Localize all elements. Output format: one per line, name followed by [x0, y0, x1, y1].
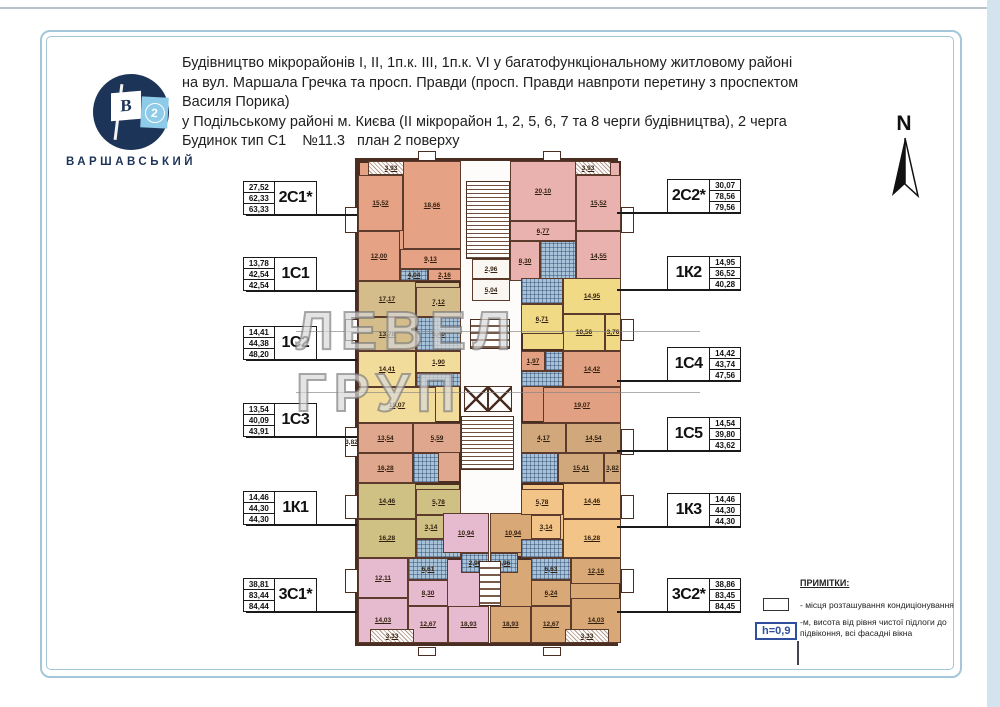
title-line: Будівництво мікрорайонів I, II, 1п.к. II…: [182, 54, 842, 74]
room: 8,30: [408, 580, 448, 606]
room: 9,13: [400, 249, 461, 269]
room-area-label: 2,96: [485, 266, 498, 273]
tile: [521, 371, 563, 387]
tile: [521, 278, 563, 304]
area-value: 47,56: [710, 370, 740, 380]
room-area-label: 12,00: [371, 253, 387, 260]
room: 4,17: [521, 423, 566, 453]
north-label: N: [884, 112, 924, 136]
area-value: 44,30: [710, 516, 740, 526]
tile: [545, 351, 563, 371]
bay: [345, 207, 358, 233]
area-value: 14,95: [710, 257, 740, 268]
room: 8,30: [510, 241, 540, 281]
room-area-label: 6,61: [422, 566, 435, 573]
area-value: 13,54: [244, 404, 274, 415]
room-area-label: 12,11: [375, 575, 391, 582]
logo-number: 2: [144, 102, 165, 123]
room-area-label: 3,82: [345, 439, 358, 446]
room-area-label: 4,17: [537, 435, 550, 442]
area-value: 79,56: [710, 202, 740, 212]
notes-title: ПРИМІТКИ:: [800, 578, 849, 588]
apartment-code: 3С1*: [275, 579, 316, 611]
room: 17,17: [358, 281, 416, 317]
area-value: 83,44: [244, 590, 274, 601]
tab: [543, 647, 561, 656]
apartment-label-1С5: 14,5439,8043,621С5: [667, 417, 741, 451]
title-line: у Подільському районі м. Києва (II мікро…: [182, 113, 842, 133]
room: 14,55: [576, 231, 621, 281]
hatch: 3,33: [370, 629, 414, 643]
room: 1,90: [416, 351, 461, 373]
bay: [621, 569, 634, 593]
room-area-label: 4,04: [408, 272, 421, 279]
room-area-label: 6,24: [545, 590, 558, 597]
area-value: 43,74: [710, 359, 740, 370]
area-value: 78,56: [710, 191, 740, 202]
apartment-code: 1С4: [668, 348, 709, 380]
room-area-label: 12,67: [543, 621, 559, 628]
lift: [488, 386, 512, 412]
room: 16,28: [358, 453, 413, 483]
hatch: 3,33: [565, 629, 609, 643]
room: 7,12: [416, 287, 461, 317]
apartment-label-1К2: 14,9536,5240,281К2: [667, 256, 741, 290]
apartment-areas: 14,5439,8043,62: [709, 418, 740, 450]
room: 12,67: [408, 606, 448, 643]
room-area-label: 19,07: [574, 402, 590, 409]
room-area-label: 14,46: [584, 498, 600, 505]
room-area-label: 14,03: [375, 617, 391, 624]
title-line: на вул. Маршала Гречка та просп. Правди …: [182, 74, 842, 113]
ac-unit-symbol: [763, 598, 789, 611]
area-value: 44,30: [710, 505, 740, 516]
room-area-label: 16,28: [379, 535, 395, 542]
room-area-label: 8,30: [519, 258, 532, 265]
room-area-label: 6,63: [545, 566, 558, 573]
apartment-label-1С2: 14,4144,3848,201С2: [243, 326, 317, 360]
apartment-label-2С2: 30,0778,5679,562С2*: [667, 179, 741, 213]
developer-logo: B 2 ВАРШАВСЬКИЙ: [55, 70, 187, 170]
room: 14,41: [358, 351, 416, 387]
room: 5,59: [413, 423, 461, 453]
area-value: 27,52: [244, 182, 274, 193]
area-value: 84,45: [710, 601, 740, 611]
area-value: 13,78: [244, 258, 274, 269]
room: 14,46: [358, 483, 416, 519]
room-area-label: 14,03: [588, 617, 604, 624]
room: 15,52: [358, 175, 403, 231]
apartment-label-1С1: 13,7842,5442,541С1: [243, 257, 317, 291]
room-area-label: 5,59: [431, 435, 444, 442]
room-area-label: 17,17: [379, 296, 395, 303]
room-area-label: 1,97: [527, 358, 540, 365]
apartment-areas: 13,5440,0943,91: [244, 404, 275, 436]
room: 5,78: [521, 489, 563, 515]
scan-top-line: [0, 7, 1000, 9]
area-value: 30,07: [710, 180, 740, 191]
north-indicator: N: [884, 112, 924, 209]
room-area-label: 3,93: [385, 165, 398, 172]
apartment-code: 1К3: [668, 494, 709, 526]
room: 3,14: [416, 515, 446, 539]
room: 18,66: [403, 161, 461, 249]
area-value: 44,38: [244, 338, 274, 349]
room: 13,54: [358, 423, 413, 453]
room: 19,07: [358, 387, 436, 423]
apartment-areas: 14,9536,5240,28: [709, 257, 740, 289]
shaft: [479, 561, 501, 606]
bay: [621, 207, 634, 233]
apartment-areas: 14,4644,3044,30: [709, 494, 740, 526]
area-value: 42,54: [244, 280, 274, 290]
area-value: 39,80: [710, 429, 740, 440]
document-title: Будівництво мікрорайонів I, II, 1п.к. II…: [182, 54, 842, 152]
area-value: 40,28: [710, 279, 740, 289]
logo-flag-icon: B: [111, 91, 141, 122]
room-area-label: 13,54: [377, 435, 393, 442]
room-area-label: 15,52: [590, 200, 606, 207]
room-area-label: 14,46: [379, 498, 395, 505]
area-value: 43,62: [710, 440, 740, 450]
bay: [345, 495, 358, 519]
area-value: 36,52: [710, 268, 740, 279]
area-value: 44,30: [244, 503, 274, 514]
room-area-label: 6,77: [537, 228, 550, 235]
area-value: 83,45: [710, 590, 740, 601]
apartment-label-2С1: 27,5262,3363,332С1*: [243, 181, 317, 215]
tile: [521, 539, 563, 558]
tile: [413, 453, 439, 483]
title-line: Будинок тип С1 №11.3 план 2 поверху: [182, 132, 842, 152]
room-area-label: 5,04: [485, 287, 498, 294]
area-value: 14,41: [244, 327, 274, 338]
room-area-label: 1,90: [432, 359, 445, 366]
room: 18,93: [448, 606, 489, 643]
apartment-areas: 13,7842,5442,54: [244, 258, 275, 290]
apartment-code: 2С1*: [275, 182, 316, 214]
apartment-code: 1С2: [275, 327, 316, 359]
area-value: 40,09: [244, 415, 274, 426]
room: 15,52: [576, 175, 621, 231]
bay: [621, 495, 634, 519]
area-value: 62,33: [244, 193, 274, 204]
lift: [464, 386, 488, 412]
tile: [540, 241, 576, 281]
room-area-label: 5,78: [536, 499, 549, 506]
apartment-code: 1К1: [275, 492, 316, 524]
room-area-label: 5,78: [432, 499, 445, 506]
room-area-label: 19,07: [389, 402, 405, 409]
room-area-label: 12,67: [420, 621, 436, 628]
area-value: 48,20: [244, 349, 274, 359]
room-area-label: 18,93: [460, 621, 476, 628]
bay: 3,82: [345, 427, 358, 457]
room: 3,82: [604, 453, 621, 483]
apartment-code: 1С5: [668, 418, 709, 450]
floor-plan-page: B 2 ВАРШАВСЬКИЙ Будівництво мікрорайонів…: [0, 0, 1000, 707]
room-area-label: 10,94: [505, 530, 521, 537]
apartment-areas: 38,8683,4584,45: [709, 579, 740, 611]
room-area-label: 14,95: [584, 293, 600, 300]
note-ac-text: - місця розташування кондиціонування: [800, 600, 975, 610]
area-value: 84,44: [244, 601, 274, 611]
area-value: 14,42: [710, 348, 740, 359]
stairs: [466, 181, 510, 259]
apartment-label-3С1: 38,8183,4484,443С1*: [243, 578, 317, 612]
room: 20,10: [510, 161, 576, 221]
apartment-code: 1С1: [275, 258, 316, 290]
room: 10,94: [443, 513, 489, 553]
room-area-label: 14,55: [590, 253, 606, 260]
room: 12,00: [358, 231, 400, 281]
room: 16,28: [358, 519, 416, 558]
bay: [345, 569, 358, 593]
area-value: 44,30: [244, 514, 274, 524]
room-area-label: 16,28: [377, 465, 393, 472]
bay: [621, 319, 634, 341]
room-area-label: 3,14: [540, 524, 553, 531]
room: 19,07: [543, 387, 621, 423]
room-area-label: 10,56: [576, 329, 592, 336]
room: 14,42: [563, 351, 621, 387]
room-area-label: 20,10: [535, 188, 551, 195]
apartment-code: 1С3: [275, 404, 316, 436]
room-area-label: 15,52: [372, 200, 388, 207]
room: 12,11: [358, 558, 408, 598]
room: 18,93: [490, 606, 531, 643]
apartment-label-3С2: 38,8683,4584,453С2*: [667, 578, 741, 612]
room: 13,78: [358, 317, 416, 351]
room-area-label: 3,82: [606, 465, 619, 472]
room-area-label: 16,28: [584, 535, 600, 542]
room: 15,41: [558, 453, 604, 483]
core: 2,96: [472, 259, 510, 279]
core: 5,04: [472, 279, 510, 301]
room-area-label: 15,41: [573, 465, 589, 472]
room-area-label: 14,41: [379, 366, 395, 373]
room-area-label: 12,16: [588, 568, 604, 575]
floor-plan: 3,823,9315,5218,6612,009,134,042,1617,17…: [355, 158, 618, 646]
room: 16,28: [563, 519, 621, 558]
room-area-label: 3,76: [607, 329, 620, 336]
tile: [416, 373, 461, 387]
room: 6,24: [531, 580, 571, 606]
shaft: [470, 319, 510, 349]
room: 12,16: [571, 558, 621, 584]
apartment-code: 1К2: [668, 257, 709, 289]
room: 5,78: [416, 489, 461, 515]
north-arrow-icon: [887, 136, 921, 204]
room-area-label: 7,12: [432, 299, 445, 306]
tab: [418, 647, 436, 656]
area-value: 14,54: [710, 418, 740, 429]
note-sill-text: -м, висота від рівня чистої підлоги до п…: [800, 617, 968, 639]
room-area-label: 6,71: [536, 316, 549, 323]
room-area-label: 13,78: [379, 331, 395, 338]
tab: [418, 151, 436, 161]
area-value: 38,86: [710, 579, 740, 590]
room-area-label: 2,16: [438, 272, 451, 279]
room: 14,54: [566, 423, 621, 453]
tile: 5,40: [416, 317, 461, 351]
apartment-areas: 14,4144,3848,20: [244, 327, 275, 359]
sill-height-leader: [797, 641, 799, 665]
room-area-label: 9,13: [424, 256, 437, 263]
room-area-label: 5,40: [432, 331, 445, 338]
apartment-areas: 14,4644,3044,30: [244, 492, 275, 524]
room-area-label: 14,42: [584, 366, 600, 373]
apartment-areas: 14,4243,7447,56: [709, 348, 740, 380]
logo-brand-name: ВАРШАВСЬКИЙ: [51, 156, 211, 168]
sill-height-badge: h=0,9: [755, 622, 797, 640]
room: 14,95: [563, 278, 621, 314]
area-value: 14,46: [710, 494, 740, 505]
apartment-areas: 38,8183,4484,44: [244, 579, 275, 611]
room-area-label: 10,94: [458, 530, 474, 537]
tab: [543, 151, 561, 161]
tile: 6,61: [408, 558, 448, 580]
tile: 4,04: [400, 269, 428, 281]
scan-right-band: [987, 0, 1000, 707]
tile: 6,63: [531, 558, 571, 580]
room: 2,16: [428, 269, 461, 281]
tile: [521, 453, 558, 483]
room: 6,71: [521, 304, 563, 334]
room-area-label: 14,54: [585, 435, 601, 442]
room: 14,46: [563, 483, 621, 519]
apartment-areas: 30,0778,5679,56: [709, 180, 740, 212]
area-value: 14,46: [244, 492, 274, 503]
area-value: 42,54: [244, 269, 274, 280]
logo-number-icon: 2: [140, 96, 169, 128]
room: 6,77: [510, 221, 576, 241]
room: 3,14: [531, 515, 561, 539]
room-area-label: 3,93: [582, 165, 595, 172]
room: 3,76: [605, 314, 621, 351]
apartment-label-1К3: 14,4644,3044,301К3: [667, 493, 741, 527]
stairs: [461, 416, 514, 470]
apartment-code: 3С2*: [668, 579, 709, 611]
area-value: 43,91: [244, 426, 274, 436]
area-value: 38,81: [244, 579, 274, 590]
apartment-label-1К1: 14,4644,3044,301К1: [243, 491, 317, 525]
apartment-code: 2С2*: [668, 180, 709, 212]
room-area-label: 18,93: [502, 621, 518, 628]
apartment-label-1С3: 13,5440,0943,911С3: [243, 403, 317, 437]
room-area-label: 3,33: [386, 633, 399, 640]
room: 10,56: [563, 314, 605, 351]
apartment-label-1С4: 14,4243,7447,561С4: [667, 347, 741, 381]
bay: [345, 319, 358, 341]
room: 1,97: [521, 351, 545, 371]
apartment-areas: 27,5262,3363,33: [244, 182, 275, 214]
room-area-label: 3,33: [581, 633, 594, 640]
area-value: 63,33: [244, 204, 274, 214]
room-area-label: 8,30: [422, 590, 435, 597]
room-area-label: 3,14: [425, 524, 438, 531]
room-area-label: 18,66: [424, 202, 440, 209]
